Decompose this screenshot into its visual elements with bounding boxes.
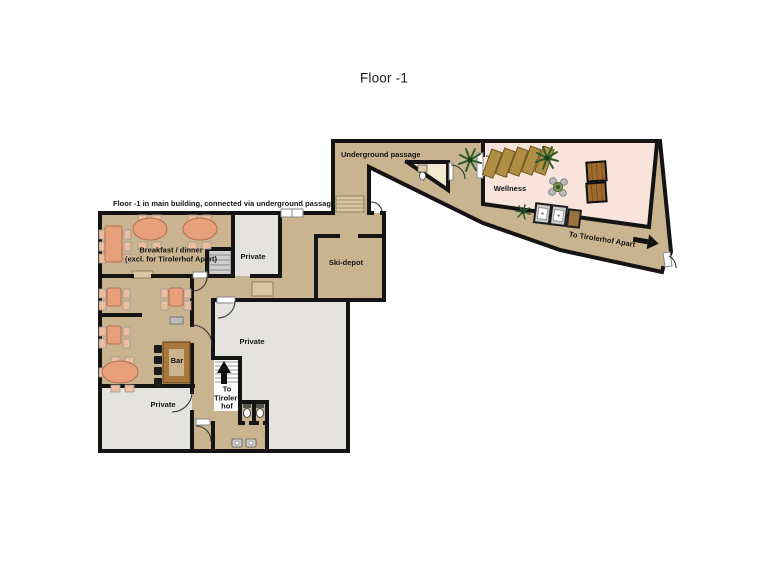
sauna-bench — [586, 161, 606, 181]
private-lower-floor — [100, 386, 192, 450]
private-main-label: Private — [239, 338, 264, 347]
sideboard — [170, 317, 183, 324]
wellness-label: Wellness — [494, 185, 526, 194]
underground-passage-label: Underground passage — [341, 151, 421, 160]
private-upper-label: Private — [240, 253, 265, 262]
sink — [232, 439, 242, 447]
breakfast-room-label: Breakfast / dinner (excl. for Tirolerhof… — [125, 247, 217, 264]
double-door-leaf-left — [281, 209, 292, 217]
to-tirolerhof-stairs-label: To Tiroler- hof — [214, 385, 240, 411]
passage-stairs — [336, 196, 364, 212]
sink — [246, 439, 256, 447]
private-lower-label: Private — [150, 401, 175, 410]
bar-label: Bar — [171, 357, 184, 366]
shower-stall — [550, 205, 567, 226]
toilet — [243, 404, 251, 418]
double-door-leaf-right — [292, 209, 303, 217]
breakfast-room-label-line2: (excl. for Tirolerhof Apart) — [125, 255, 217, 264]
floorplan-page: Floor -1 — [0, 0, 767, 576]
corridor-top-door-leaf — [193, 272, 207, 278]
apart-exit-door-leaf — [663, 252, 672, 267]
corridor-ramp — [252, 282, 273, 296]
floorplan-drawing — [0, 0, 767, 576]
breakfast-doorway-threshold — [132, 271, 153, 278]
toilet — [256, 404, 264, 418]
sauna-heater-block — [567, 209, 581, 227]
shower-stall — [534, 203, 551, 224]
to-tirolerhof-stairs-label-line3: hof — [214, 402, 240, 411]
loungers — [483, 146, 555, 178]
ski-depot-label: Ski-depot — [329, 259, 363, 268]
sauna-bench — [586, 182, 606, 202]
private-upper-floor — [234, 214, 280, 276]
corridor-bottom-door-leaf — [196, 419, 210, 425]
private-main-door-leaf — [217, 297, 235, 303]
main-building-note: Floor -1 in main building, connected via… — [113, 200, 335, 209]
